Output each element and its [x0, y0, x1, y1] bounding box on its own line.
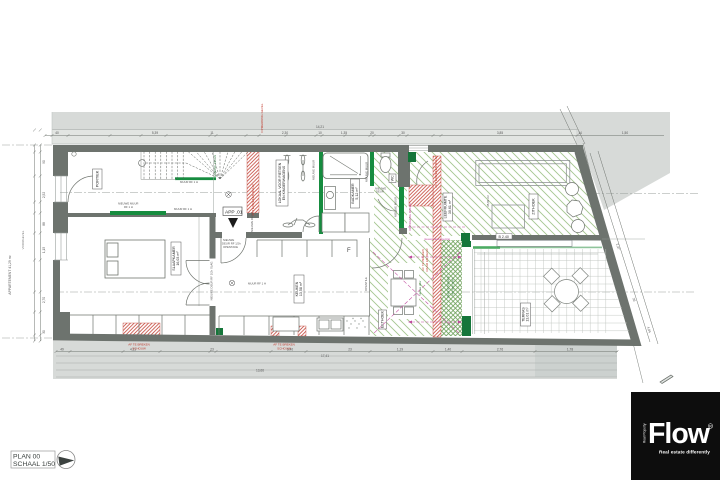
svg-text:1,19: 1,19: [397, 348, 403, 352]
svg-text:nieuwe raamopening: nieuwe raamopening: [424, 237, 450, 241]
svg-text:13,01 m²: 13,01 m²: [526, 307, 530, 322]
svg-text:AF TE BREKEN MUUR: AF TE BREKEN MUUR: [434, 155, 438, 187]
svg-text:14,21: 14,21: [316, 125, 324, 129]
svg-text:met vast raam: met vast raam: [451, 277, 455, 295]
svg-text:F: F: [347, 248, 351, 254]
svg-text:B 2.40: B 2.40: [499, 235, 509, 239]
svg-text:90: 90: [42, 160, 46, 164]
svg-text:RAAM EN DEUR: RAAM EN DEUR: [425, 248, 429, 272]
svg-text:1,40: 1,40: [445, 348, 451, 352]
svg-text:13,58 m²: 13,58 m²: [299, 281, 303, 296]
svg-text:PORTIEK: PORTIEK: [95, 170, 99, 187]
svg-text:17,41: 17,41: [321, 354, 329, 358]
svg-text:NIEUWE MUUR: NIEUWE MUUR: [312, 160, 316, 180]
svg-text:OPENTILE: OPENTILE: [364, 277, 368, 291]
svg-text:30: 30: [401, 131, 405, 135]
svg-text:EETHOEK: EETHOEK: [380, 310, 384, 328]
svg-text:OPENTAKE: OPENTAKE: [223, 245, 238, 249]
svg-text:5,39: 5,39: [152, 131, 158, 135]
svg-text:2,52: 2,52: [42, 192, 46, 198]
svg-text:SCHOUW: SCHOUW: [277, 347, 291, 351]
svg-text:R: R: [709, 425, 712, 429]
svg-text:2,30: 2,30: [282, 131, 288, 135]
svg-text:49: 49: [60, 348, 64, 352]
svg-text:35,81 m²: 35,81 m²: [486, 195, 490, 207]
svg-text:GEMENE DELEN: GEMENE DELEN: [213, 155, 217, 177]
svg-text:MUUR RF 1 H: MUUR RF 1 H: [174, 207, 192, 211]
svg-text:5,12 m²: 5,12 m²: [355, 187, 359, 200]
svg-text:88: 88: [42, 222, 46, 226]
svg-text:2,76: 2,76: [497, 348, 503, 352]
svg-text:30: 30: [42, 330, 46, 334]
svg-text:40: 40: [55, 131, 59, 135]
svg-text:Real estate differently: Real estate differently: [659, 450, 710, 455]
svg-text:DEUR: DEUR: [376, 190, 384, 194]
svg-text:Real Property: Real Property: [643, 423, 647, 443]
svg-text:RF 1 H: RF 1 H: [124, 205, 133, 209]
svg-text:ZITHOEK: ZITHOEK: [532, 198, 536, 215]
svg-text:1,15: 1,15: [42, 247, 46, 253]
svg-text:14: 14: [578, 131, 582, 135]
svg-text:23: 23: [348, 348, 352, 352]
svg-text:NIEUWE MUUR: NIEUWE MUUR: [394, 197, 398, 217]
svg-text:23: 23: [210, 348, 214, 352]
svg-text:MUUR RF 1 H: MUUR RF 1 H: [248, 282, 266, 286]
svg-text:Flow: Flow: [648, 418, 711, 450]
svg-text:PLAN 00: PLAN 00: [13, 454, 40, 461]
svg-text:11: 11: [210, 131, 214, 135]
svg-text:EN KINDERWAGENS: EN KINDERWAGENS: [282, 165, 286, 200]
svg-text:OPMERKING GEVEL: OPMERKING GEVEL: [260, 103, 264, 133]
svg-text:2,70: 2,70: [42, 297, 46, 303]
svg-text:10: 10: [318, 131, 322, 135]
svg-text:20: 20: [370, 131, 374, 135]
svg-text:VOORGEVEL: VOORGEVEL: [21, 230, 25, 249]
svg-text:WC: WC: [390, 175, 394, 181]
svg-text:1,78: 1,78: [567, 348, 573, 352]
svg-text:APPARTEMENT 41,29 m²: APPARTEMENT 41,29 m²: [8, 254, 12, 294]
svg-text:NIEUWE MUUR: NIEUWE MUUR: [365, 162, 369, 182]
svg-text:1,50: 1,50: [622, 131, 628, 135]
svg-text:MUUR RF 1 H: MUUR RF 1 H: [180, 180, 198, 184]
svg-text:SCHAAL 1/50: SCHAAL 1/50: [13, 461, 55, 468]
svg-text:SCHOUW: SCHOUW: [132, 347, 146, 351]
svg-text:nieuwe deur: nieuwe deur: [418, 280, 422, 295]
svg-text:13,66: 13,66: [256, 369, 264, 373]
svg-text:16,03 m²: 16,03 m²: [176, 251, 180, 266]
svg-text:nieuw schrijnwerk: nieuw schrijnwerk: [446, 275, 450, 298]
svg-text:AF TE BREKEN MUUR: AF TE BREKEN MUUR: [251, 183, 255, 215]
svg-text:DOORGANG MAKEN: DOORGANG MAKEN: [408, 203, 412, 230]
svg-text:APP .01: APP .01: [225, 210, 243, 216]
svg-text:30,61 m²: 30,61 m²: [448, 199, 452, 214]
svg-text:1,35: 1,35: [341, 131, 347, 135]
svg-text:3,85: 3,85: [497, 131, 503, 135]
svg-text:NIEUWE DEUR RF 1/2h SLAG: NIEUWE DEUR RF 1/2h SLAG: [210, 262, 214, 301]
